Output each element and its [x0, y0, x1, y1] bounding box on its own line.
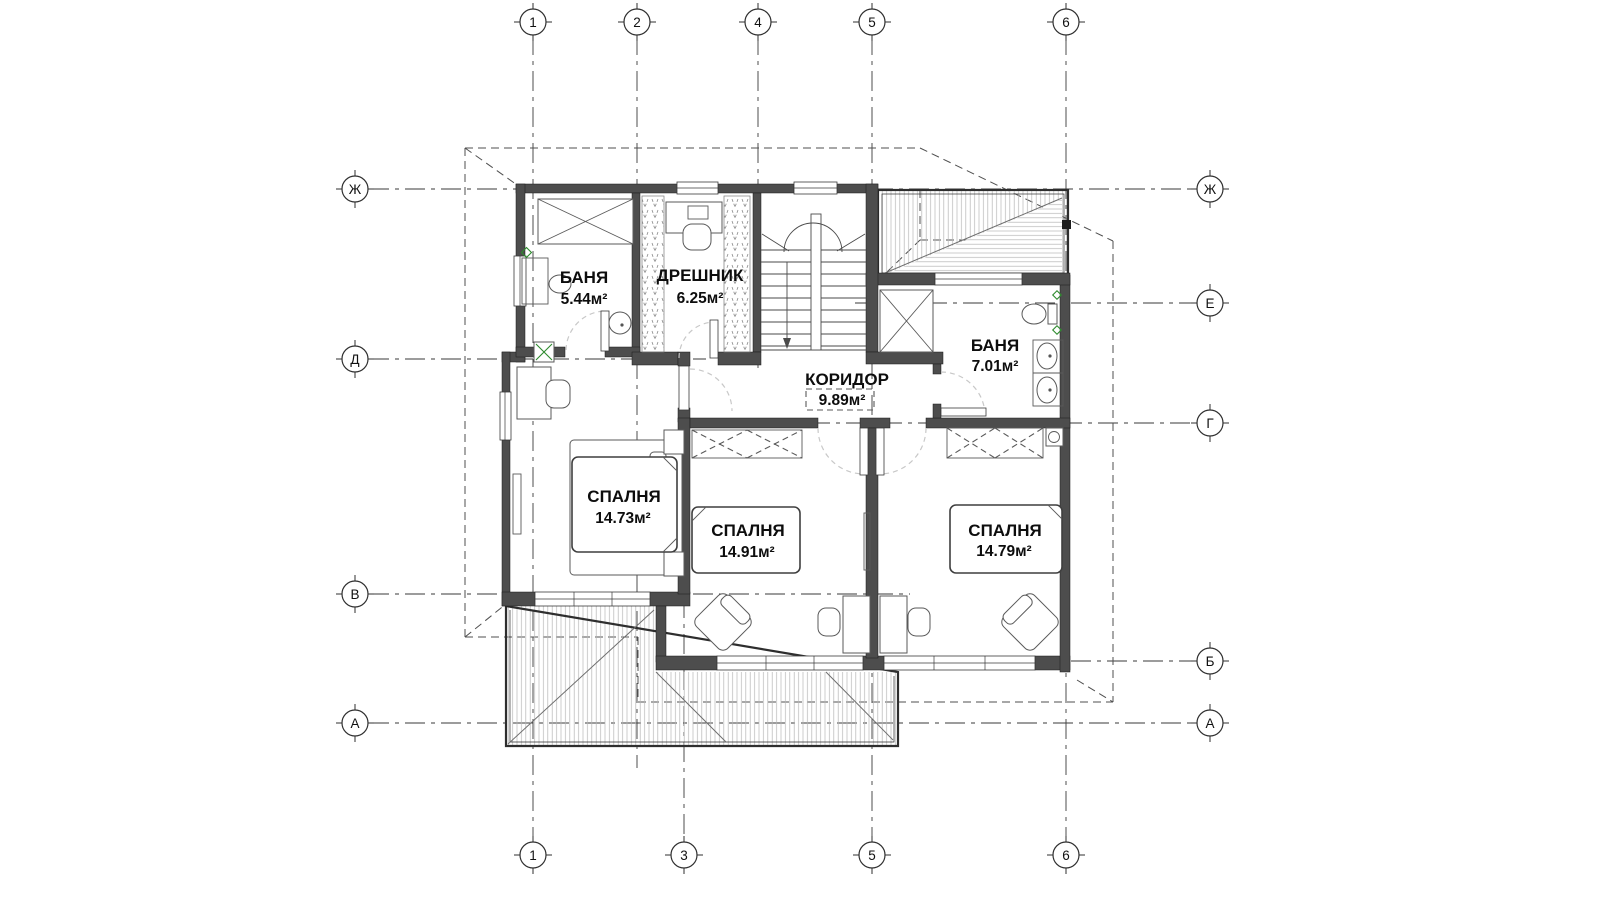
floor-plan-drawing: БАНЯ 5.44м² ДРЕШНИК 6.25м² КОРИДОР 9.89м…	[0, 0, 1600, 900]
svg-text:Ж: Ж	[1204, 182, 1217, 197]
chair	[908, 608, 930, 636]
svg-text:6: 6	[1062, 15, 1070, 30]
svg-text:5.44м²: 5.44м²	[561, 291, 608, 308]
axis-bubble-top-6: 6	[1047, 3, 1085, 41]
wardrobe	[947, 428, 1043, 458]
armchair	[692, 589, 756, 653]
window-top-1	[677, 182, 718, 194]
axis-bubble-bottom-1: 1	[514, 836, 552, 874]
chair	[818, 608, 840, 636]
svg-text:14.73м²: 14.73м²	[595, 510, 650, 527]
room-label-master-bedroom: СПАЛНЯ 14.73м²	[572, 457, 677, 552]
svg-text:А: А	[350, 716, 359, 731]
terrace-roof-top-right	[878, 190, 1071, 277]
svg-text:1: 1	[529, 848, 537, 863]
axis-bubble-right-e: Е	[1191, 284, 1229, 322]
window-west-1	[514, 256, 526, 306]
axis-bubble-left-v: В	[336, 575, 374, 613]
nightstand	[664, 552, 684, 576]
wall-shelf	[513, 474, 521, 534]
svg-text:1: 1	[529, 15, 537, 30]
svg-text:9.89м²: 9.89м²	[819, 392, 866, 409]
axis-bubble-right-a: А	[1191, 704, 1229, 742]
axis-bubble-left-a: А	[336, 704, 374, 742]
svg-text:Г: Г	[1206, 416, 1214, 431]
room-label-bedroom2: СПАЛНЯ 14.91м²	[692, 507, 800, 573]
toilet	[609, 312, 631, 334]
svg-text:2: 2	[633, 15, 641, 30]
desk	[880, 596, 907, 653]
svg-text:5: 5	[868, 848, 876, 863]
desk	[843, 596, 870, 653]
wardrobe	[692, 430, 802, 458]
axis-bubble-top-4: 4	[739, 3, 777, 41]
svg-text:14.79м²: 14.79м²	[976, 543, 1031, 560]
room-label-bath2: БАНЯ 7.01м²	[971, 336, 1019, 375]
axis-bubble-right-g: Г	[1191, 404, 1229, 442]
dressing-chair	[683, 224, 711, 250]
svg-text:7.01м²: 7.01м²	[972, 358, 1019, 375]
armchair	[997, 589, 1061, 653]
svg-text:СПАЛНЯ: СПАЛНЯ	[587, 487, 660, 506]
axis-bubble-bottom-5: 5	[853, 836, 891, 874]
axis-bubble-left-d: Д	[336, 340, 374, 378]
window-top-2	[794, 182, 837, 194]
axis-bubble-right-zh: Ж	[1191, 170, 1229, 208]
floor-plan-page: БАНЯ 5.44м² ДРЕШНИК 6.25м² КОРИДОР 9.89м…	[0, 0, 1600, 900]
svg-text:КОРИДОР: КОРИДОР	[805, 370, 889, 389]
axis-bubble-top-1: 1	[514, 3, 552, 41]
chair	[546, 380, 570, 408]
svg-text:СПАЛНЯ: СПАЛНЯ	[711, 521, 784, 540]
svg-text:СПАЛНЯ: СПАЛНЯ	[968, 521, 1041, 540]
axis-bubble-top-2: 2	[618, 3, 656, 41]
room-label-corridor: КОРИДОР 9.89м²	[805, 370, 889, 410]
svg-text:Ж: Ж	[349, 182, 362, 197]
svg-text:Е: Е	[1205, 296, 1214, 311]
svg-text:14.91м²: 14.91м²	[719, 544, 774, 561]
svg-text:4: 4	[754, 15, 762, 30]
svg-text:5: 5	[868, 15, 876, 30]
window-bath2-north	[935, 273, 1022, 285]
axis-bubble-bottom-6: 6	[1047, 836, 1085, 874]
room-label-bedroom3: СПАЛНЯ 14.79м²	[950, 505, 1062, 573]
svg-text:Д: Д	[350, 352, 359, 367]
svg-text:6.25м²: 6.25м²	[677, 290, 724, 307]
nightstand	[664, 430, 684, 454]
svg-text:БАНЯ: БАНЯ	[971, 336, 1019, 355]
axis-bubble-top-5: 5	[853, 3, 891, 41]
stair-arrow-head	[783, 338, 791, 349]
window-bed2-south	[717, 656, 863, 670]
column-marker	[1062, 220, 1071, 229]
svg-text:ДРЕШНИК: ДРЕШНИК	[657, 266, 744, 285]
sink	[1037, 343, 1057, 369]
svg-text:3: 3	[680, 848, 688, 863]
window-bed3-south	[884, 656, 1035, 670]
svg-text:6: 6	[1062, 848, 1070, 863]
staircase	[761, 214, 866, 350]
window-west-2	[500, 392, 511, 440]
svg-text:Б: Б	[1206, 654, 1215, 669]
window-master-south	[535, 592, 650, 606]
axis-bubble-left-zh: Ж	[336, 170, 374, 208]
svg-text:В: В	[350, 587, 359, 602]
axis-bubble-right-b: Б	[1191, 642, 1229, 680]
svg-text:А: А	[1205, 716, 1214, 731]
svg-text:БАНЯ: БАНЯ	[560, 268, 608, 287]
toilet	[1022, 304, 1046, 324]
axis-bubble-bottom-3: 3	[665, 836, 703, 874]
sink	[1037, 377, 1057, 403]
